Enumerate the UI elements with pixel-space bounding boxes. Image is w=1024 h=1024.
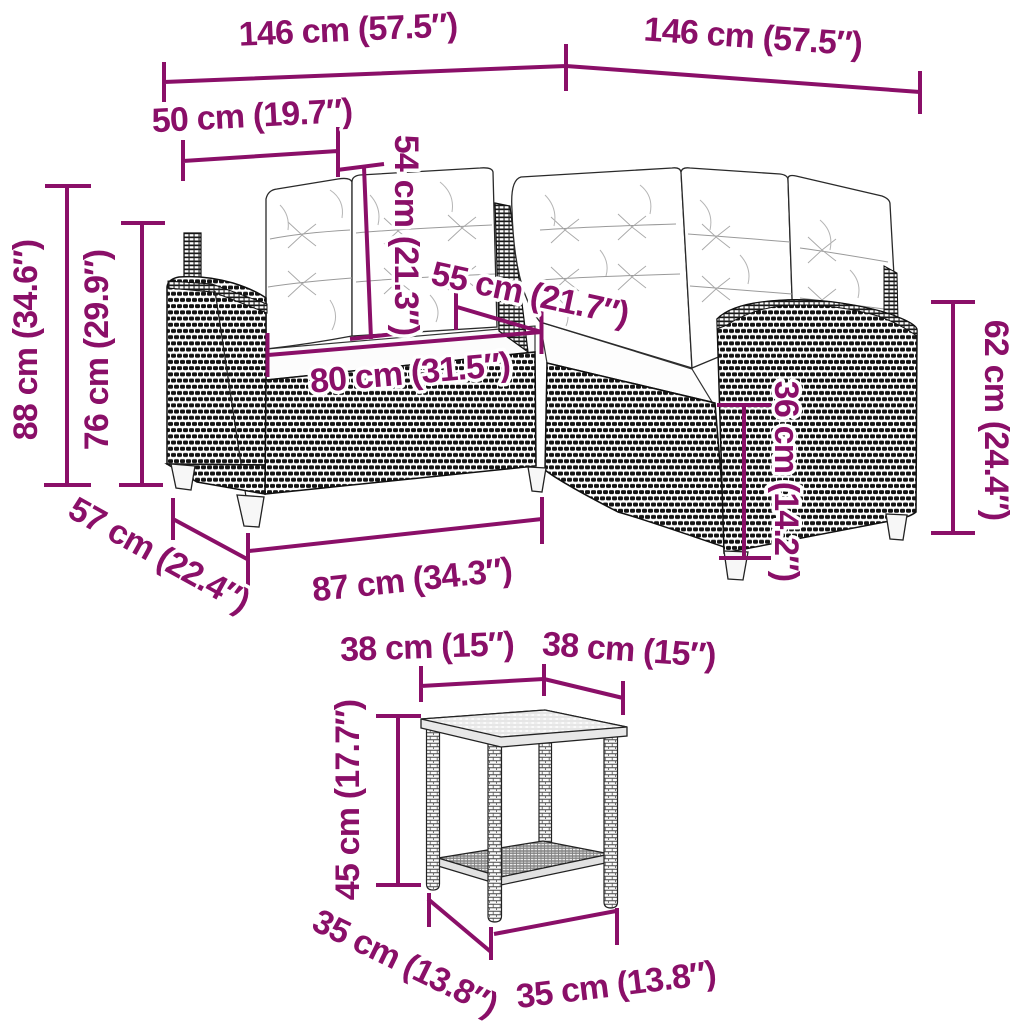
svg-text:45 cm (17.7″): 45 cm (17.7″) [329, 700, 367, 901]
svg-text:88 cm (34.6″): 88 cm (34.6″) [7, 240, 45, 441]
svg-text:62 cm (24.4″): 62 cm (24.4″) [977, 320, 1015, 521]
svg-text:38 cm (15″): 38 cm (15″) [339, 625, 514, 669]
svg-text:54 cm (21.3″): 54 cm (21.3″) [387, 135, 425, 336]
svg-text:76 cm (29.9″): 76 cm (29.9″) [78, 250, 116, 451]
svg-text:36 cm (14.2″): 36 cm (14.2″) [767, 381, 805, 582]
